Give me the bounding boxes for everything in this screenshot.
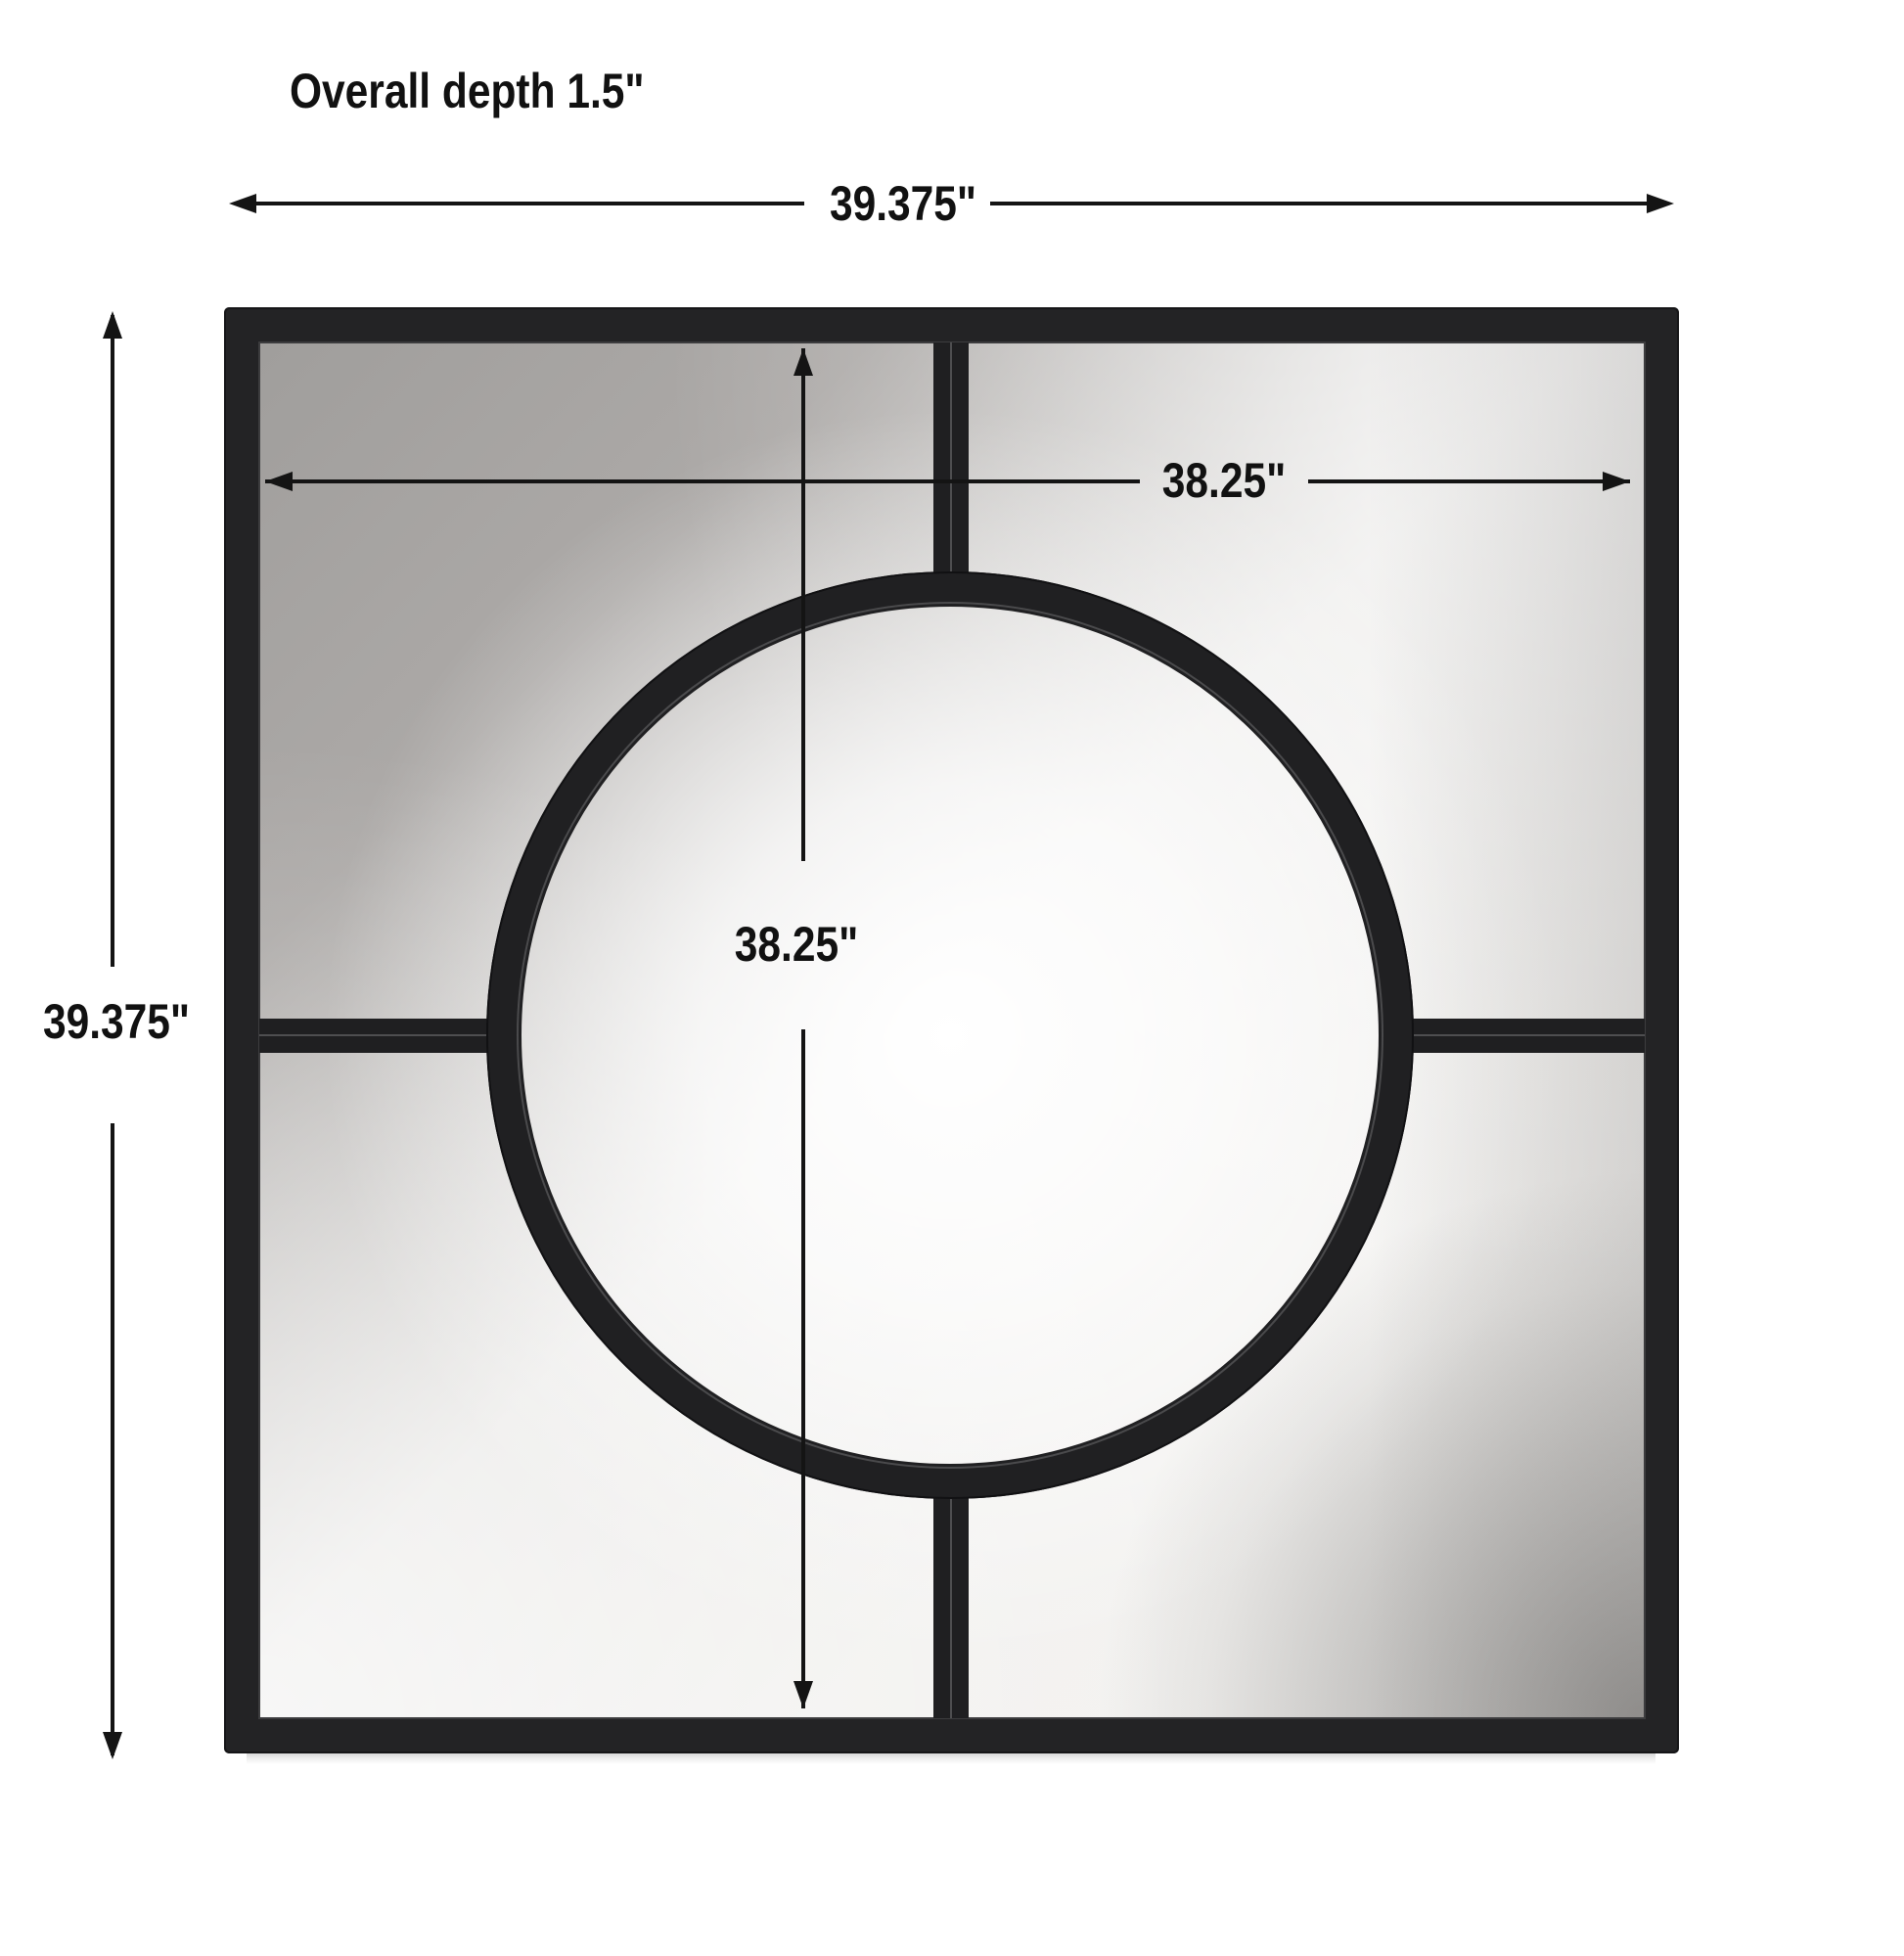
svg-text:39.375": 39.375" (43, 994, 190, 1049)
svg-text:38.25": 38.25" (735, 917, 858, 972)
svg-text:Overall depth 1.5": Overall depth 1.5" (290, 64, 645, 118)
svg-text:38.25": 38.25" (1162, 453, 1286, 508)
svg-text:39.375": 39.375" (830, 176, 976, 231)
